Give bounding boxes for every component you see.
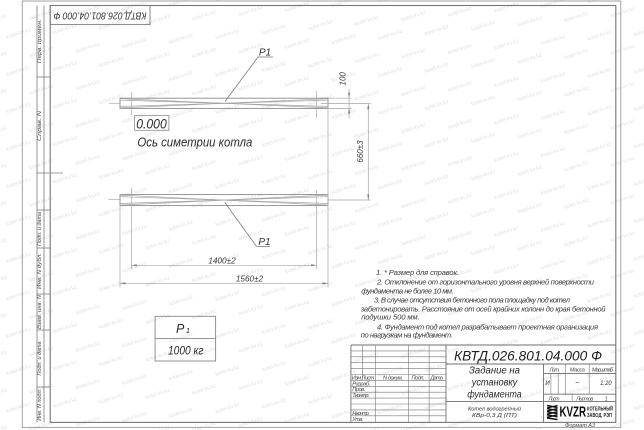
svg-text:КВТД.026.801.04.000 Ф: КВТД.026.801.04.000 Ф [454, 348, 602, 363]
svg-text:Формат А3: Формат А3 [565, 423, 595, 429]
svg-text:3. В случае отсутствия бетонно: 3. В случае отсутствия бетонного пола пл… [374, 296, 571, 305]
svg-text:Подп.: Подп. [412, 375, 425, 381]
svg-text:КОТЕЛЬНЫЙ: КОТЕЛЬНЫЙ [587, 405, 613, 413]
svg-text:Масса: Масса [570, 368, 585, 374]
svg-text:P 1: P 1 [176, 322, 190, 336]
svg-text:Справ. N: Справ. N [37, 110, 43, 141]
svg-text:Взам. инв. N: Взам. инв. N [37, 294, 43, 329]
svg-text:2. Отклонение от горизонтально: 2. Отклонение от горизонтального уровня … [376, 277, 595, 286]
svg-text:подушки 500 мм.: подушки 500 мм. [361, 313, 420, 322]
svg-text:Лит.: Лит. [549, 368, 560, 374]
svg-text:Подп. и дата: Подп. и дата [37, 211, 43, 246]
svg-text:КВТД.026.801.04.000 Ф: КВТД.026.801.04.000 Ф [54, 10, 147, 21]
svg-text:1: 1 [605, 396, 608, 402]
svg-text:–: – [575, 380, 580, 387]
svg-text:Подп. и дата: Подп. и дата [37, 341, 43, 376]
svg-text:фундамента не более 10 мм.: фундамента не более 10 мм. [361, 286, 454, 295]
svg-text:фундамента: фундамента [467, 388, 522, 400]
svg-text:Инв. N подл.: Инв. N подл. [37, 389, 43, 421]
svg-text:660±3: 660±3 [356, 140, 365, 163]
svg-text:P1: P1 [259, 48, 271, 59]
svg-text:100: 100 [338, 72, 347, 86]
svg-text:Лист: Лист [548, 396, 560, 402]
svg-text:Листов: Листов [575, 396, 593, 402]
svg-text:Котел водогрейный: Котел водогрейный [468, 405, 522, 412]
svg-text:KVZR: KVZR [560, 405, 587, 421]
svg-text:ЗАВОД, РЭП: ЗАВОД, РЭП [587, 413, 612, 419]
svg-text:по нагрузкам на фундамент.: по нагрузкам на фундамент. [361, 331, 453, 340]
svg-text:Задание на: Задание на [469, 366, 520, 377]
svg-text:1:20: 1:20 [600, 380, 612, 387]
svg-text:P1: P1 [258, 237, 270, 248]
svg-text:1560±2: 1560±2 [236, 274, 264, 283]
svg-text:1. * Размер для справок.: 1. * Размер для справок. [376, 268, 459, 277]
svg-text:Инв. N дубл.: Инв. N дубл. [37, 253, 43, 289]
svg-text:установку: установку [471, 377, 518, 388]
svg-text:И: И [545, 380, 550, 387]
svg-text:Масштаб: Масштаб [592, 368, 614, 374]
svg-text:КВр-0,3 Д (ПТ): КВр-0,3 Д (ПТ) [472, 413, 517, 419]
svg-text:Утв.: Утв. [351, 417, 363, 423]
svg-text:1000 кг: 1000 кг [168, 346, 204, 358]
svg-text:Ось симетрии котла: Ось симетрии котла [137, 136, 252, 150]
svg-text:0.000: 0.000 [136, 117, 167, 133]
svg-text:Перв. примен.: Перв. примен. [37, 19, 43, 63]
svg-text:Т.контр.: Т.контр. [352, 393, 369, 399]
svg-text:1400±2: 1400±2 [208, 256, 236, 265]
svg-text:Дата: Дата [430, 375, 444, 381]
svg-text:N докум.: N докум. [383, 375, 403, 381]
